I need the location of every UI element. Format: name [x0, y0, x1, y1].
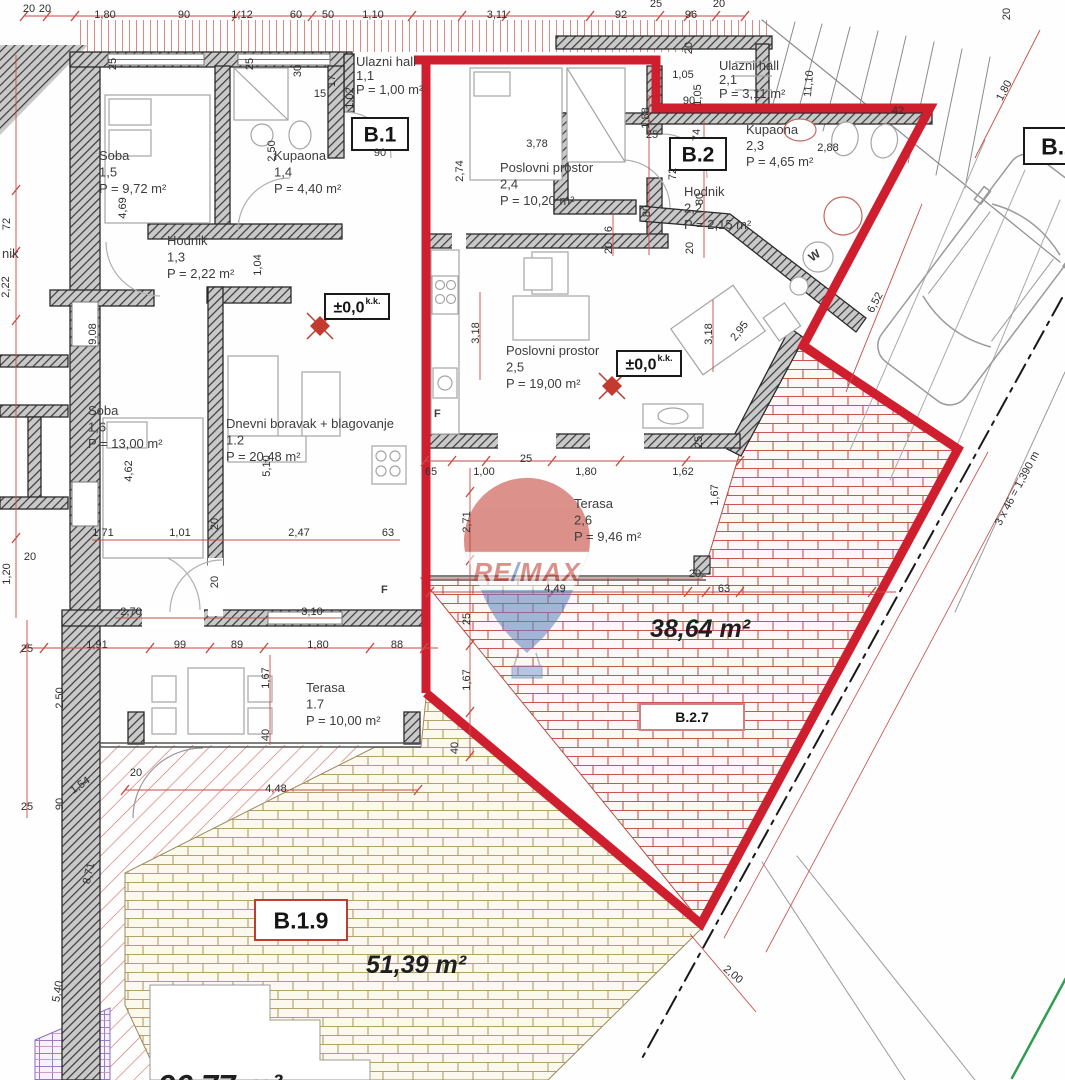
room-label: 1,6 [88, 420, 106, 435]
room-label: P = 10,00 m² [306, 713, 381, 728]
room-label: Poslovni prostor [506, 343, 600, 358]
dimension-label: 20 [130, 767, 142, 779]
dimension-label: 60 [290, 9, 302, 21]
unit-badge-label: B.2 [682, 144, 715, 167]
dimension-label: 92 [615, 9, 627, 21]
unit-badge-label: B.2 [1041, 133, 1065, 159]
dimension-label: 2,50 [54, 687, 66, 708]
dimension-label: 3,18 [470, 322, 482, 343]
dimension-label: 4,49 [544, 583, 565, 595]
dimension-label: 1,00 [473, 466, 494, 478]
room-label: Soba [88, 403, 119, 418]
dimension-label: 20 [24, 551, 36, 563]
dimension-label: 25 [693, 436, 705, 448]
dimension-label: 4,69 [117, 197, 129, 218]
dimension-label: 1,71 [92, 527, 113, 539]
room-label: P = 9,72 m² [99, 181, 167, 196]
dimension-label: 25 [650, 0, 662, 10]
dimension-label: 30 [292, 65, 304, 77]
dimension-label: 1,62 [672, 466, 693, 478]
dimension-label: 17 [326, 75, 338, 87]
room-label: Kupaona [274, 148, 327, 163]
dimension-label: 4,48 [265, 783, 286, 795]
dimension-label: 20 [713, 0, 725, 10]
room-label: 1,5 [99, 165, 117, 180]
misc-label: nik [2, 246, 19, 261]
dimension-label: 1,80 [307, 639, 328, 651]
room-label: P = 2,15 m² [684, 217, 752, 232]
dimension-label: 63 [382, 527, 394, 539]
dimension-label: 25 [520, 453, 532, 465]
room-label: Kupaona [746, 122, 799, 137]
dimension-label: 1,88 [640, 107, 652, 128]
dimension-label: 1,80 [994, 78, 1015, 103]
dimension-label: 20 [689, 568, 701, 580]
dimension-label: 1,80 [575, 466, 596, 478]
dimension-label: 2,47 [288, 527, 309, 539]
room-label: P = 1,00 m² [356, 82, 424, 97]
room-label: 2,4 [500, 177, 518, 192]
dimension-label: 25 [21, 801, 33, 813]
dimension-label: 40 [449, 742, 461, 754]
unit-badge-sup: k.k. [657, 353, 672, 363]
room-label: 1,4 [274, 165, 292, 180]
dimension-label: 20 [209, 576, 221, 588]
dimension-label: 90 [683, 95, 695, 107]
dimension-label: 9,08 [87, 323, 99, 344]
dimension-label: 3,18 [703, 323, 715, 344]
room-label: P = 13,00 m² [88, 436, 163, 451]
room-label: Hodnik [167, 233, 208, 248]
misc-label: F [434, 408, 441, 420]
dimension-label: 50 [322, 9, 334, 21]
dimension-label: 2,88 [817, 142, 838, 154]
room-label: Ulazni hall [719, 58, 779, 73]
room-label: 1.2 [226, 433, 244, 448]
floor-plan-canvas: RE/MAX B.1B.2B.2B.2.7B.1.9±0,0k.k.±0,0k.… [0, 0, 1065, 1080]
area-value-label: 96,77 m² [158, 1068, 283, 1080]
dimension-label: 1,12 [231, 9, 252, 21]
dimension-label: 25 [107, 58, 119, 70]
dimension-label: 96 [685, 9, 697, 21]
dimension-label: 2,71 [461, 511, 473, 532]
room-label: P = 10,20 m² [500, 193, 575, 208]
dimension-label: 1,20 [1, 563, 13, 584]
dimension-label: 99 [174, 639, 186, 651]
dimension-label: 3 x 46 = 1,390 m [993, 449, 1042, 527]
dimension-label: 40 [260, 729, 272, 741]
room-label: Soba [99, 148, 130, 163]
dimension-label: 3,11 [487, 9, 508, 21]
room-label: 2,6 [574, 513, 592, 528]
dimension-label: 25 [244, 58, 256, 70]
room-label: P = 9,46 m² [574, 529, 642, 544]
room-label: 1.7 [306, 697, 324, 712]
unit-badge-label: ±0,0 [333, 299, 364, 316]
room-label: P = 2,22 m² [167, 266, 235, 281]
dimension-label: 2,50 [266, 140, 278, 161]
dimension-label: 15 [314, 88, 326, 100]
room-label: Poslovni prostor [500, 160, 594, 175]
dimension-label: 25 [461, 613, 473, 625]
dimension-label: 2,22 [0, 276, 12, 297]
dimension-label: 1,67 [461, 669, 473, 690]
dimension-label: 89 [231, 639, 243, 651]
room-label: Dnevni boravak + blagovanje [226, 416, 394, 431]
dimension-label: 20 [209, 518, 221, 530]
dimension-label: 1,67 [709, 484, 721, 505]
dimension-label: 2,70 [120, 606, 141, 618]
dimension-label: 25 [646, 129, 658, 141]
dimension-label: 1,80 [94, 9, 115, 21]
dimension-label: 88 [391, 639, 403, 651]
unit-badge-label: B.1 [364, 124, 397, 147]
dimension-label: 72 [1, 218, 13, 230]
unit-badge-label: ±0,0 [625, 356, 656, 373]
dimension-label: 1,01 [169, 527, 190, 539]
dimension-label: 1,67 [260, 667, 272, 688]
dimension-label: 3,78 [526, 138, 547, 150]
unit-badge-label: B.2.7 [675, 709, 709, 725]
dimension-label: 2,74 [454, 160, 466, 181]
dimension-label: 3,10 [301, 606, 322, 618]
room-label: Terasa [306, 680, 346, 695]
dimension-label: 63 [718, 583, 730, 595]
dimension-label: 20 [603, 242, 615, 254]
dimension-label: 80 [641, 205, 653, 217]
room-label: P = 19,00 m² [506, 376, 581, 391]
dimension-label: 1,04 [252, 254, 264, 275]
dimension-label: 1,02 [344, 87, 356, 108]
dimension-label: 42 [892, 105, 904, 117]
dimension-label: 90 [54, 798, 66, 810]
room-label: 1,3 [167, 250, 185, 265]
dimension-label: 20 [23, 3, 35, 15]
room-label: P = 4,65 m² [746, 154, 814, 169]
room-label: P = 3,11 m² [719, 86, 786, 101]
dimension-label: 5,10 [261, 455, 273, 476]
dimension-label: 72 [667, 168, 679, 180]
dimension-label: 1,05 [672, 69, 693, 81]
dimension-label: 1,10 [362, 9, 383, 21]
dimension-label: 6 [603, 226, 615, 232]
green-utility-line [1012, 978, 1065, 1078]
dimension-label: 65 [425, 466, 437, 478]
dimension-label: 90 [178, 9, 190, 21]
dimension-label: 25 [21, 643, 33, 655]
dimension-label: 20 [684, 242, 696, 254]
room-label: 1,1 [356, 68, 374, 83]
dimension-label: 2,00 [721, 963, 745, 986]
dimension-label: 20 [39, 3, 51, 15]
floor-plan-svg: RE/MAX B.1B.2B.2B.2.7B.1.9±0,0k.k.±0,0k.… [0, 0, 1065, 1080]
room-label: 2,1 [719, 72, 737, 87]
dimension-label: 90 [374, 147, 386, 159]
room-label: 2,5 [506, 360, 524, 375]
room-label: Terasa [574, 496, 614, 511]
dimension-label: 4,62 [123, 460, 135, 481]
dimension-label: 74 [691, 129, 703, 141]
dimension-label: 80 [694, 193, 706, 205]
room-label: P = 4,40 m² [274, 181, 342, 196]
area-value-label: 51,39 m² [366, 951, 467, 979]
dimension-label: 20 [683, 42, 695, 54]
dimension-label: 20 [1001, 8, 1013, 20]
misc-label: F [381, 584, 388, 596]
unit-badge-sup: k.k. [365, 296, 380, 306]
unit-badge-label: B.1.9 [274, 907, 329, 933]
dimension-label: 1,91 [86, 639, 107, 651]
area-value-label: 38,64 m² [650, 615, 751, 643]
dimension-label: 11,10 [802, 70, 816, 98]
room-label: Ulazni hall [356, 54, 416, 69]
room-label: 2,3 [746, 138, 764, 153]
